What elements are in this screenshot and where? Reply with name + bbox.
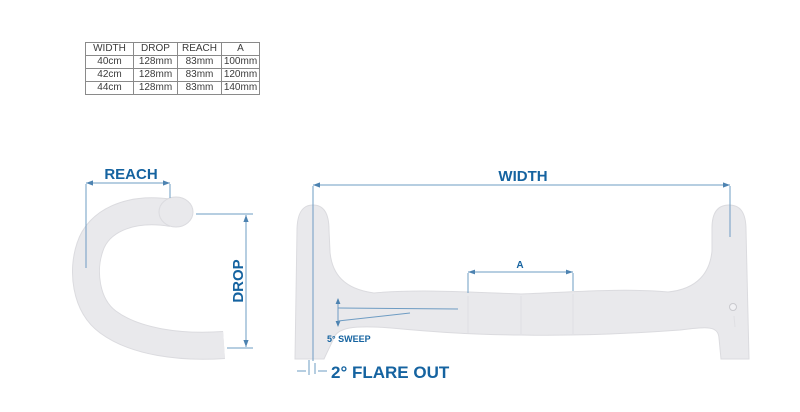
- diagram-canvas: REACH DROP WIDTH: [0, 0, 800, 412]
- cable-port-detail: [730, 304, 737, 311]
- reach-arrow-right: [163, 180, 170, 185]
- side-bar-tube: [86, 211, 224, 345]
- stem-clamp-bulge: [159, 197, 193, 227]
- a-arrow-left: [468, 270, 475, 275]
- a-label: A: [516, 260, 523, 271]
- width-arrow-right: [723, 182, 730, 187]
- reach-label: REACH: [104, 166, 157, 183]
- drop-arrow-top: [243, 215, 248, 222]
- width-arrow-left: [313, 182, 320, 187]
- handlebar-geometry-diagram: WIDTH DROP REACH A 40cm 128mm 83mm 100mm…: [0, 0, 800, 412]
- drop-dimension: DROP: [196, 214, 253, 348]
- flare-annotation: 2° FLARE OUT: [297, 360, 450, 382]
- a-arrow-right: [566, 270, 573, 275]
- a-dimension: A: [468, 260, 573, 293]
- reach-arrow-left: [86, 180, 93, 185]
- width-label: WIDTH: [498, 168, 547, 185]
- drop-arrow-bottom: [243, 340, 248, 347]
- handlebar-side-view: [86, 197, 224, 346]
- sweep-label: 5° SWEEP: [327, 334, 371, 344]
- flare-label: 2° FLARE OUT: [331, 363, 450, 382]
- drop-label: DROP: [230, 259, 247, 302]
